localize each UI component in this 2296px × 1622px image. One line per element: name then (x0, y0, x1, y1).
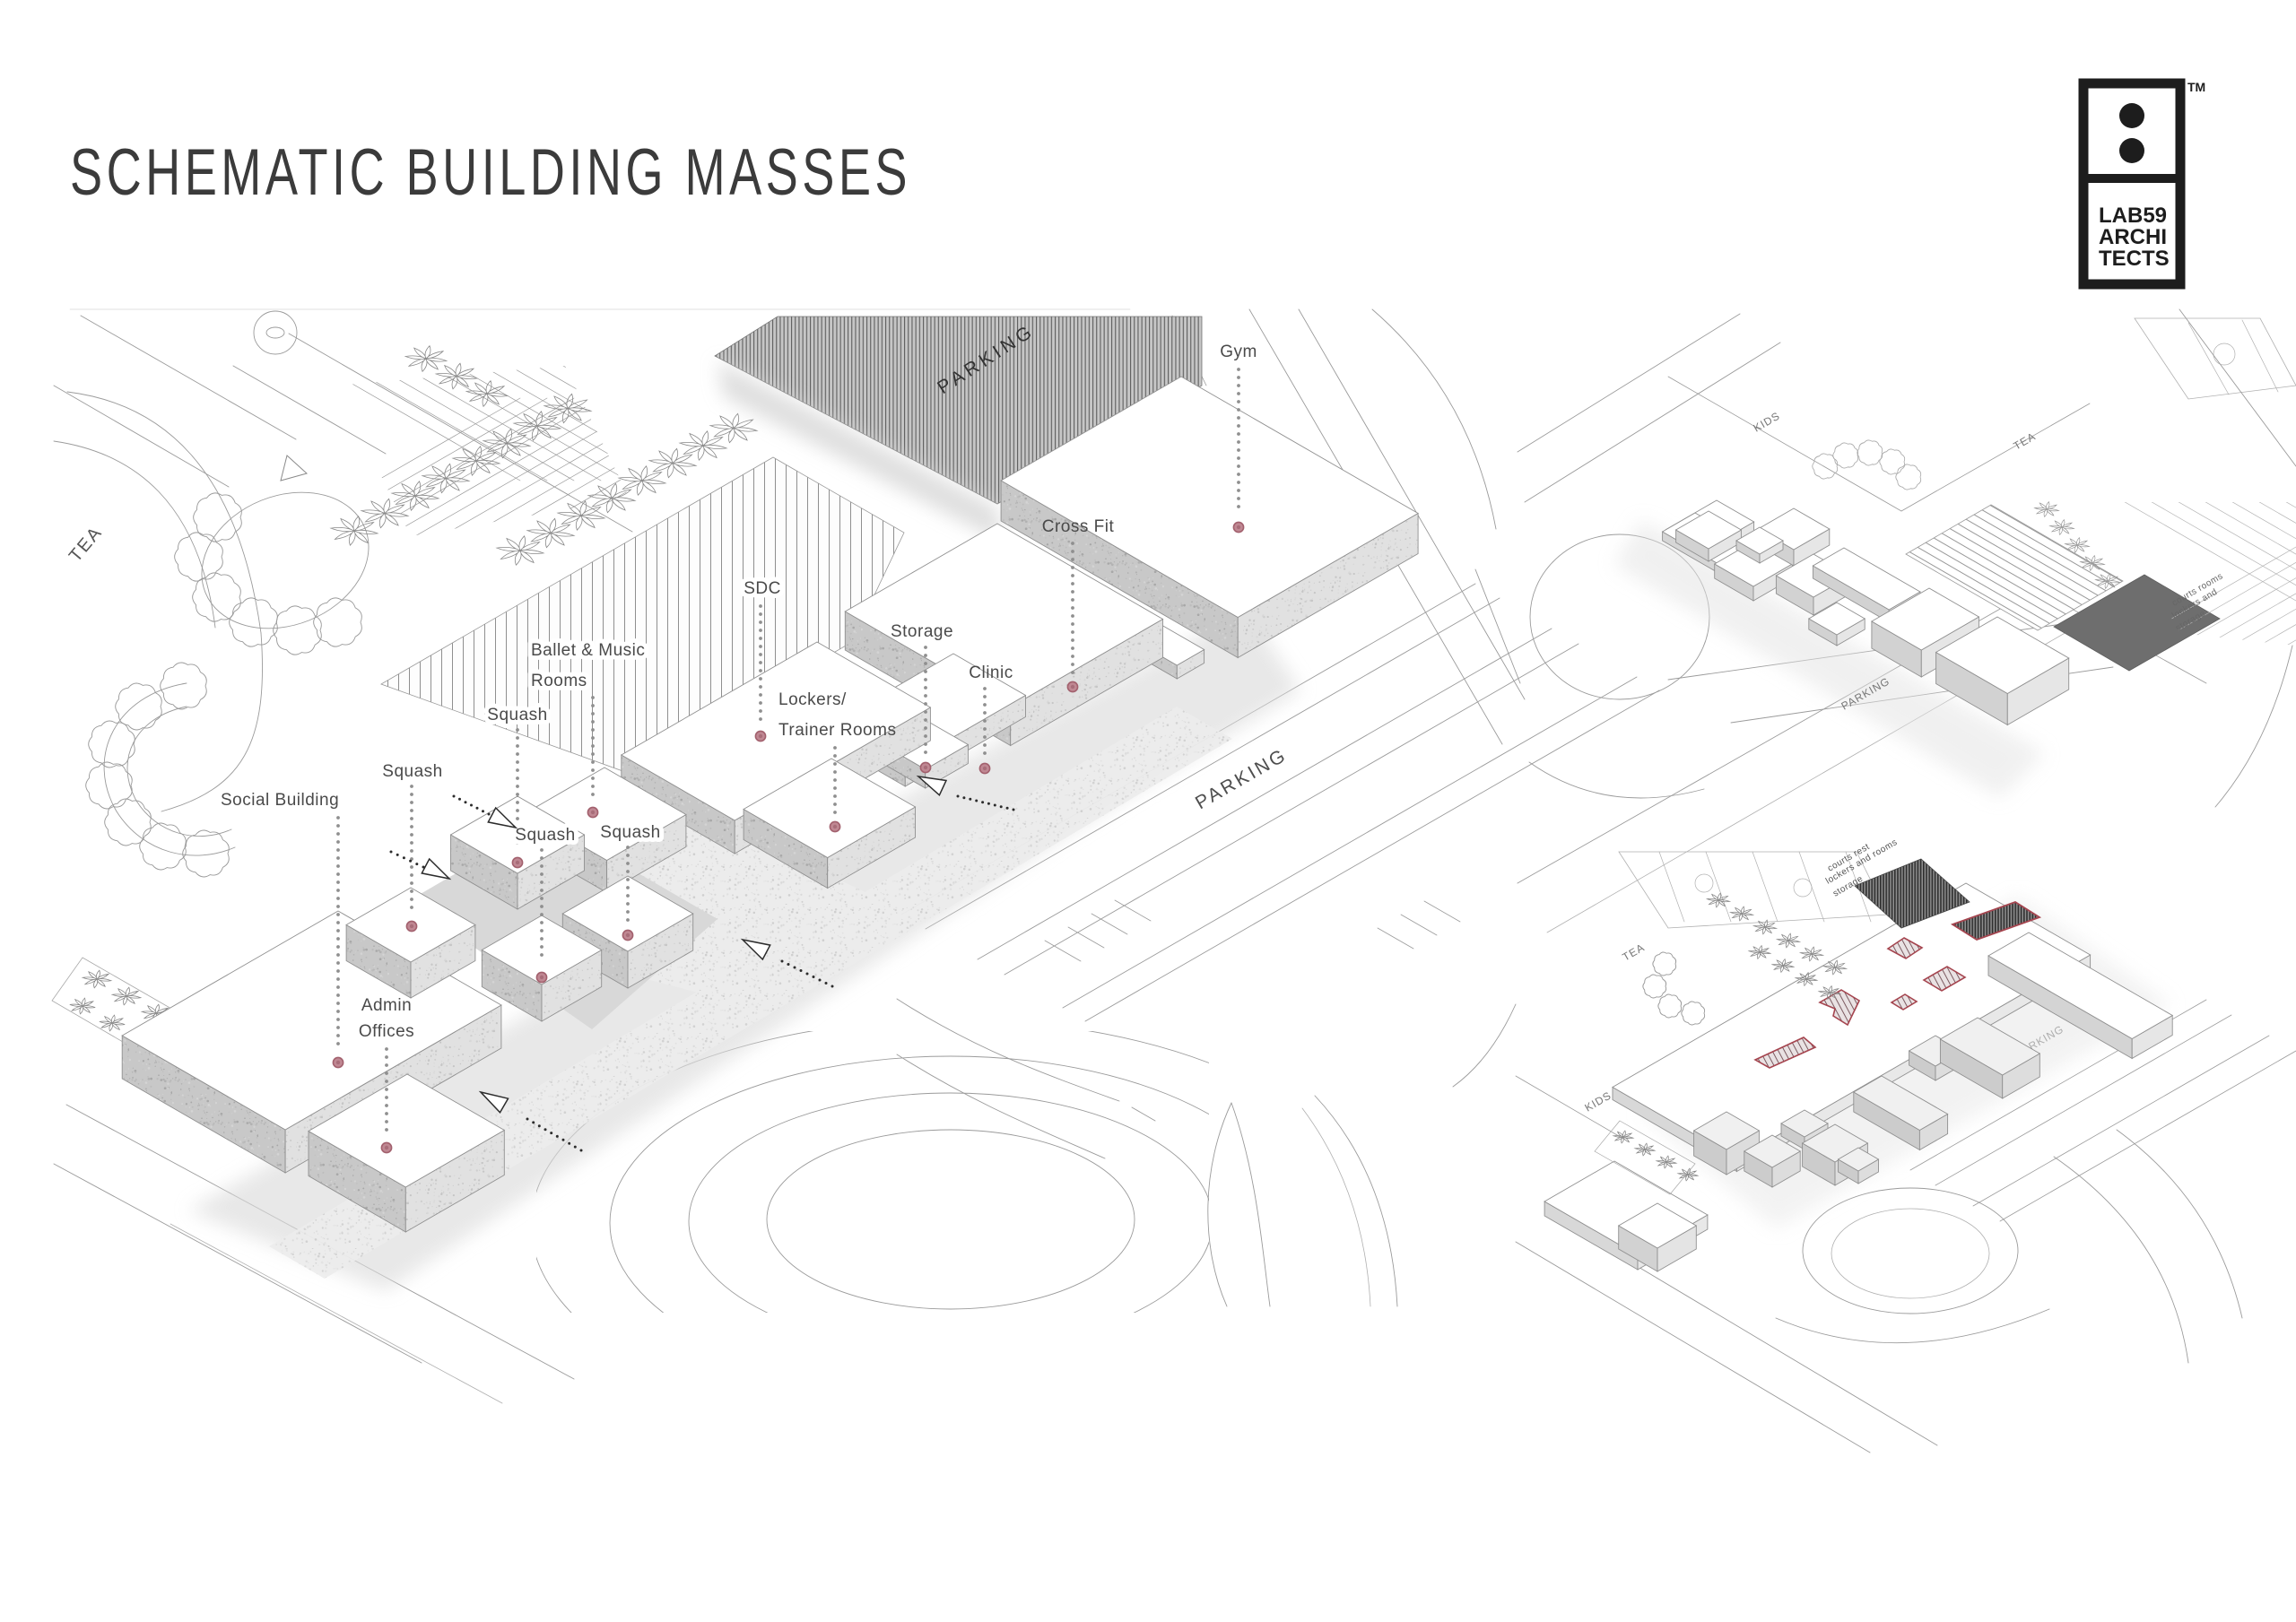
svg-text:SCHEMATIC BUILDING MASSES: SCHEMATIC BUILDING MASSES (70, 136, 911, 209)
svg-text:Squash: Squash (600, 823, 660, 842)
svg-text:Squash: Squash (515, 826, 575, 845)
svg-text:Squash: Squash (382, 762, 442, 781)
svg-text:Squash: Squash (487, 706, 547, 724)
svg-text:SDC: SDC (744, 579, 781, 598)
svg-text:Admin: Admin (361, 996, 412, 1015)
svg-text:Social Building: Social Building (221, 791, 339, 810)
svg-text:ARCHI: ARCHI (2099, 225, 2167, 249)
svg-text:Gym: Gym (1220, 343, 1257, 361)
svg-text:Clinic: Clinic (969, 664, 1013, 682)
svg-text:Trainer Rooms: Trainer Rooms (778, 721, 896, 740)
svg-text:TM: TM (2187, 80, 2205, 94)
svg-text:Lockers/: Lockers/ (778, 690, 847, 709)
svg-text:Storage: Storage (891, 622, 953, 641)
svg-text:Cross Fit: Cross Fit (1042, 517, 1115, 536)
svg-text:Ballet & Music: Ballet & Music (531, 641, 645, 660)
svg-text:Offices: Offices (359, 1022, 414, 1041)
svg-text:Rooms: Rooms (531, 672, 587, 690)
svg-text:TECTS: TECTS (2099, 247, 2170, 271)
svg-text:LAB59: LAB59 (2099, 204, 2167, 228)
